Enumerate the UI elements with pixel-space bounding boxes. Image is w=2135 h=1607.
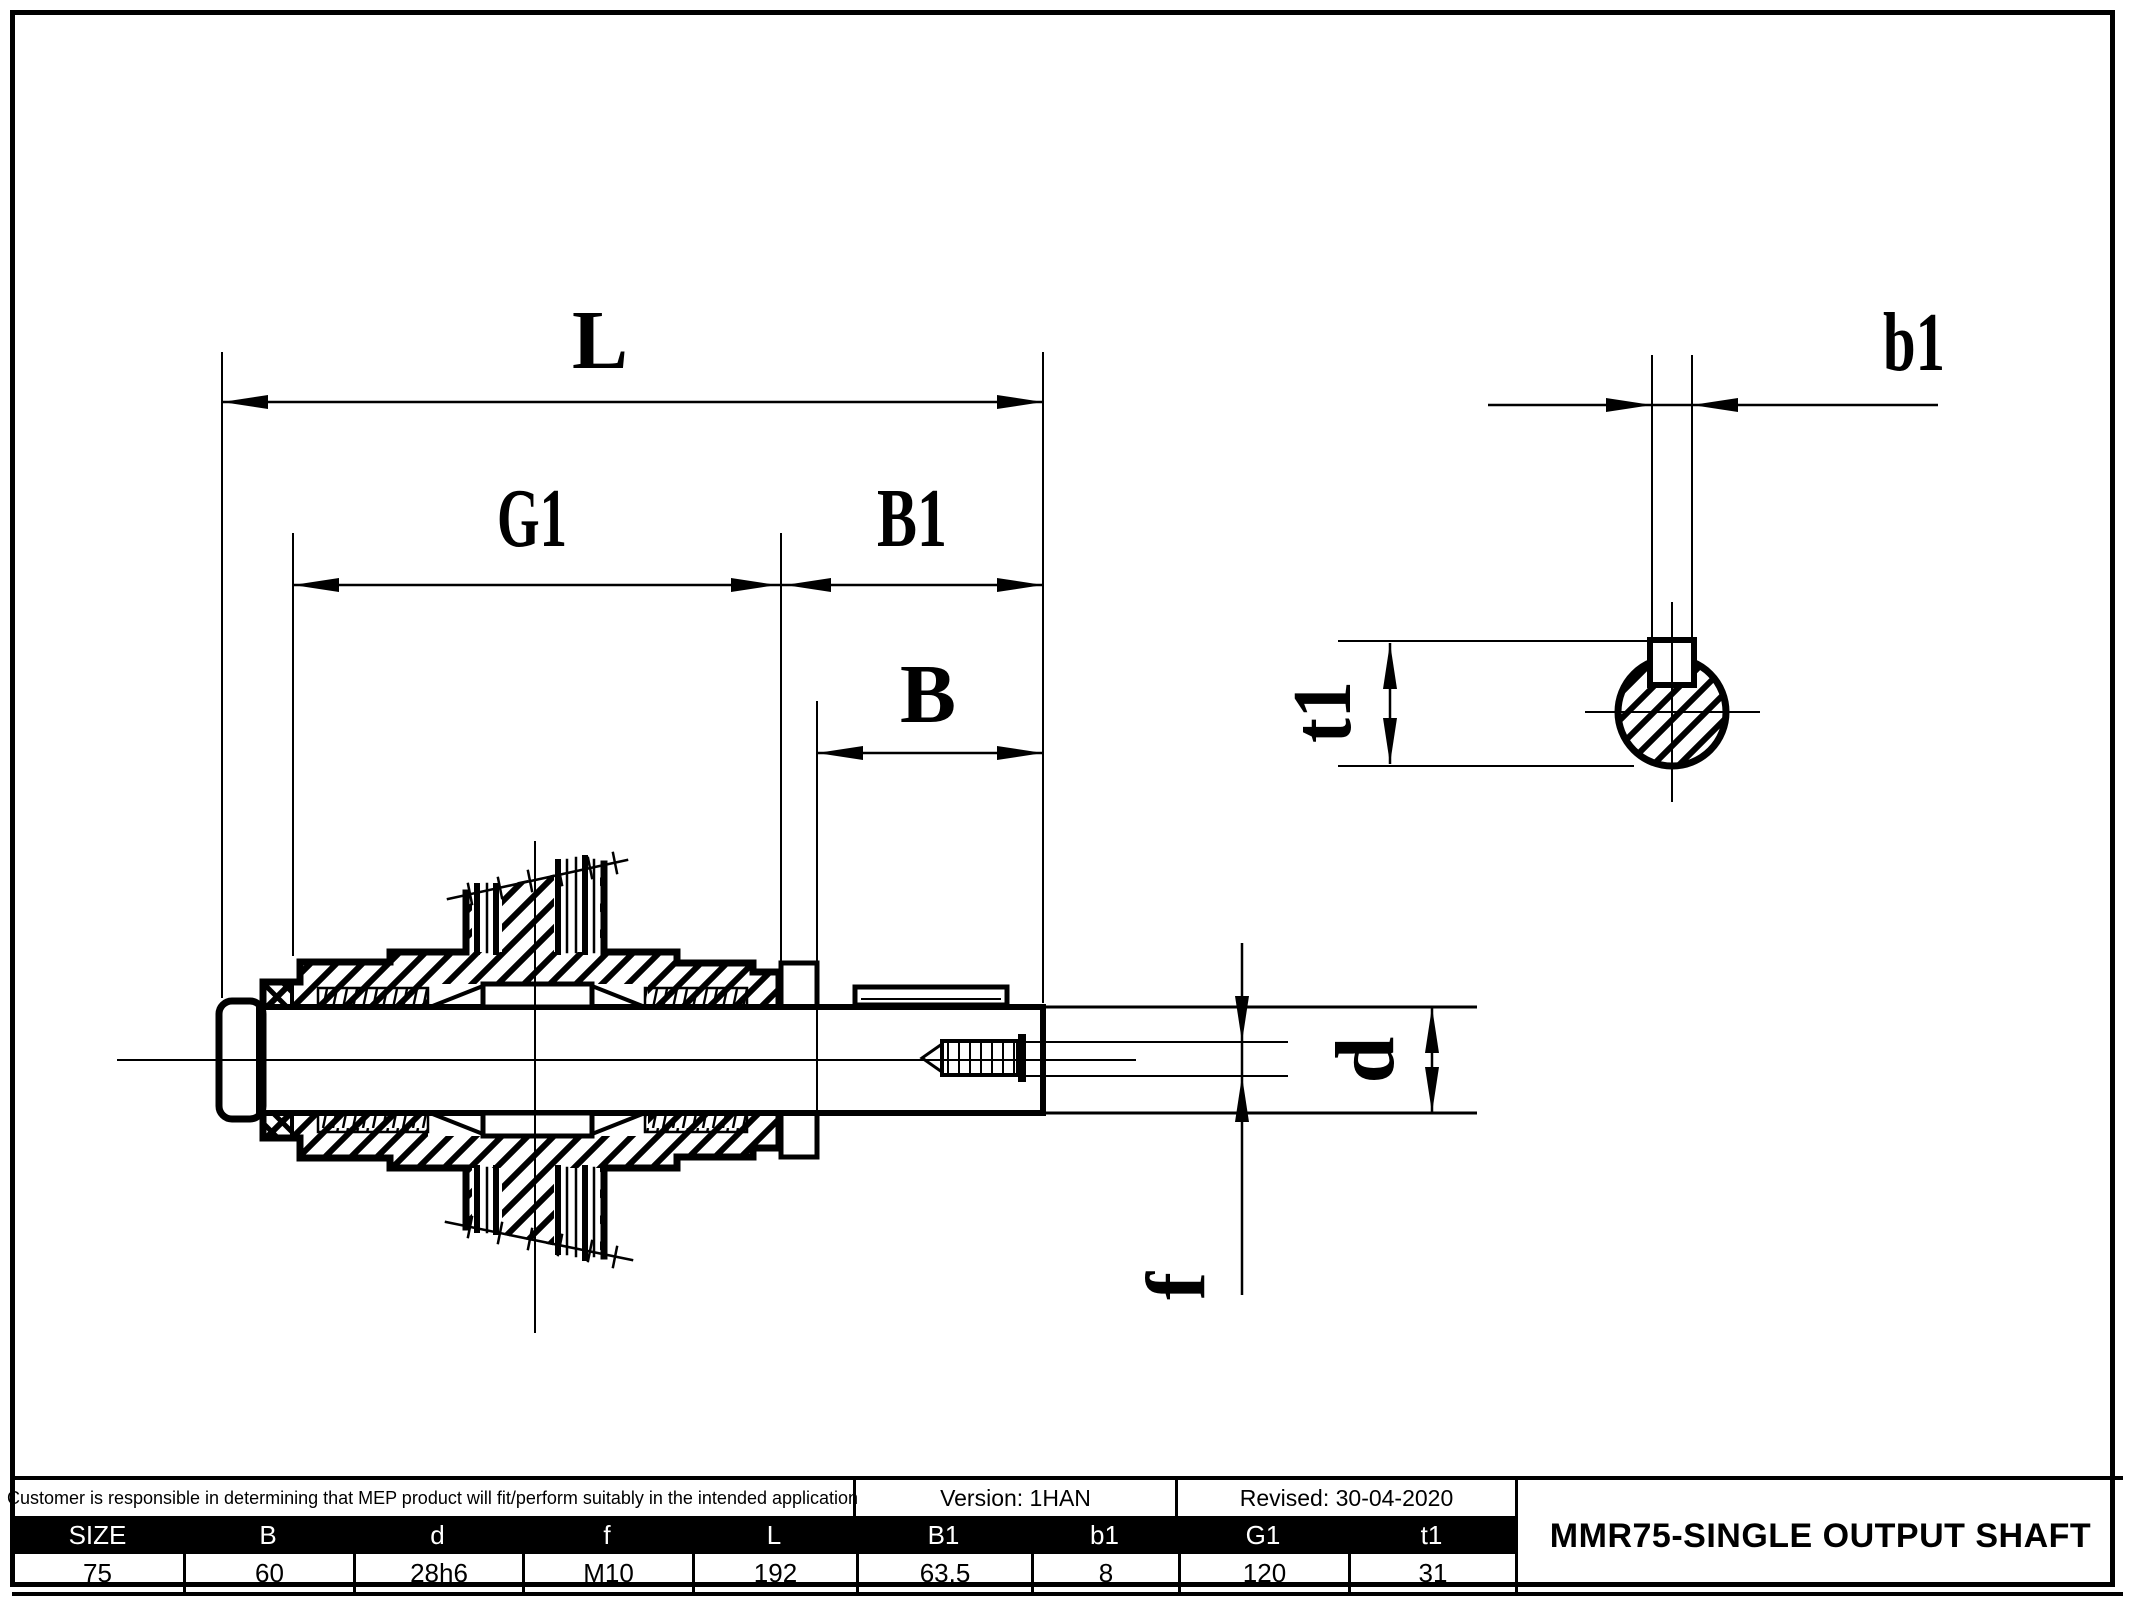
version-label: Version: 1HAN xyxy=(856,1480,1178,1516)
value-b1-cap: 63.5 xyxy=(856,1554,1031,1592)
dim-label-d: d xyxy=(1319,1037,1412,1084)
revised-label: Revised: 30-04-2020 xyxy=(1178,1480,1515,1516)
shaft-end-view: b1 t1 xyxy=(1276,296,1945,802)
value-b1: 8 xyxy=(1031,1554,1178,1592)
left-seal-top xyxy=(263,982,292,1007)
value-t1: 31 xyxy=(1348,1554,1515,1592)
dim-label-b1: b1 xyxy=(1883,296,1945,389)
dim-label-t1: t1 xyxy=(1276,681,1369,743)
hub-keyway-top xyxy=(483,984,592,1007)
column-header-l: L xyxy=(692,1516,856,1554)
column-header-g1: G1 xyxy=(1178,1516,1348,1554)
value-d: 28h6 xyxy=(353,1554,522,1592)
value-size: 75 xyxy=(12,1554,183,1592)
value-f: M10 xyxy=(522,1554,692,1592)
value-l: 192 xyxy=(692,1554,856,1592)
drawing-title: MMR75-SINGLE OUTPUT SHAFT xyxy=(1515,1480,2123,1592)
column-header-f: f xyxy=(522,1516,692,1554)
dim-label-B: B xyxy=(900,648,956,741)
table-header-row: SIZE B d f L B1 b1 G1 t1 xyxy=(12,1516,1515,1554)
column-header-b1-cap: B1 xyxy=(856,1516,1031,1554)
output-keyway-slot xyxy=(855,987,1007,1005)
column-header-t1: t1 xyxy=(1348,1516,1515,1554)
end-view-centerlines xyxy=(1585,602,1760,802)
value-g1: 120 xyxy=(1178,1554,1348,1592)
column-header-size: SIZE xyxy=(12,1516,183,1554)
right-cover-bottom xyxy=(781,1113,817,1157)
dim-label-f: f xyxy=(1130,1271,1223,1300)
dim-label-L: L xyxy=(572,294,628,387)
column-header-b1: b1 xyxy=(1031,1516,1178,1554)
column-header-d: d xyxy=(353,1516,522,1554)
main-section-view xyxy=(118,842,1135,1332)
dim-label-G1: G1 xyxy=(497,472,567,565)
left-seal-bottom xyxy=(263,1113,292,1138)
hub-keyway-bottom xyxy=(483,1113,592,1136)
technical-drawing-canvas: L G1 B1 B d f b1 t1 xyxy=(0,0,2135,1476)
title-block: Customer is responsible in determining t… xyxy=(12,1476,2123,1596)
dim-label-B1: B1 xyxy=(877,472,947,565)
disclaimer-note: Customer is responsible in determining t… xyxy=(12,1480,856,1516)
right-cover-top xyxy=(781,963,817,1007)
column-header-b: B xyxy=(183,1516,353,1554)
value-b: 60 xyxy=(183,1554,353,1592)
